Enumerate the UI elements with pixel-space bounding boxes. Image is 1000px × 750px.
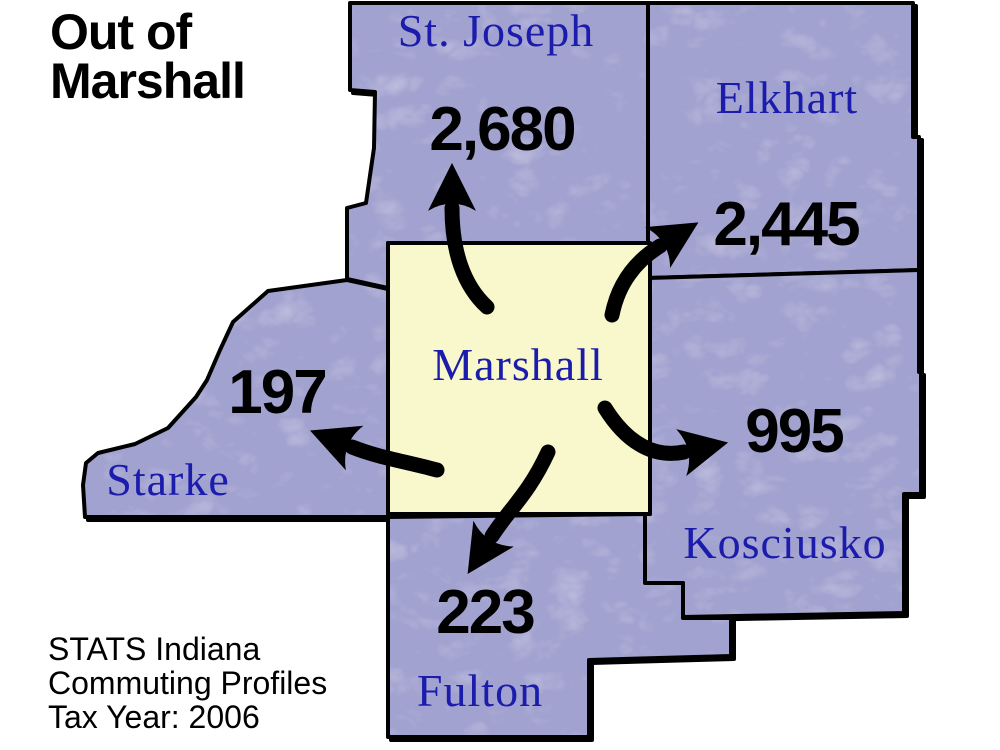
county-label-fulton: Fulton bbox=[417, 668, 543, 714]
county-label-elkhart: Elkhart bbox=[716, 75, 858, 121]
county-label-starke: Starke bbox=[106, 457, 230, 503]
commuting-flow-map-page: Out of Marshall St. Joseph 2,680 Elkhart… bbox=[0, 0, 1000, 750]
commuter-count-fulton: 223 bbox=[436, 582, 533, 644]
county-label-marshall: Marshall bbox=[432, 342, 604, 388]
county-label-st-joseph: St. Joseph bbox=[398, 8, 595, 54]
source-attribution: STATS Indiana Commuting Profiles Tax Yea… bbox=[48, 632, 327, 734]
commuter-count-elkhart: 2,445 bbox=[713, 194, 858, 256]
source-line-2: Commuting Profiles bbox=[48, 666, 327, 700]
county-label-kosciusko: Kosciusko bbox=[683, 520, 886, 566]
source-line-3: Tax Year: 2006 bbox=[48, 700, 327, 734]
commuter-count-starke: 197 bbox=[228, 362, 325, 424]
source-line-1: STATS Indiana bbox=[48, 632, 327, 666]
commuter-count-kosciusko: 995 bbox=[745, 401, 842, 463]
commuter-count-st-joseph: 2,680 bbox=[429, 99, 574, 161]
page-title: Out of Marshall bbox=[50, 8, 245, 106]
